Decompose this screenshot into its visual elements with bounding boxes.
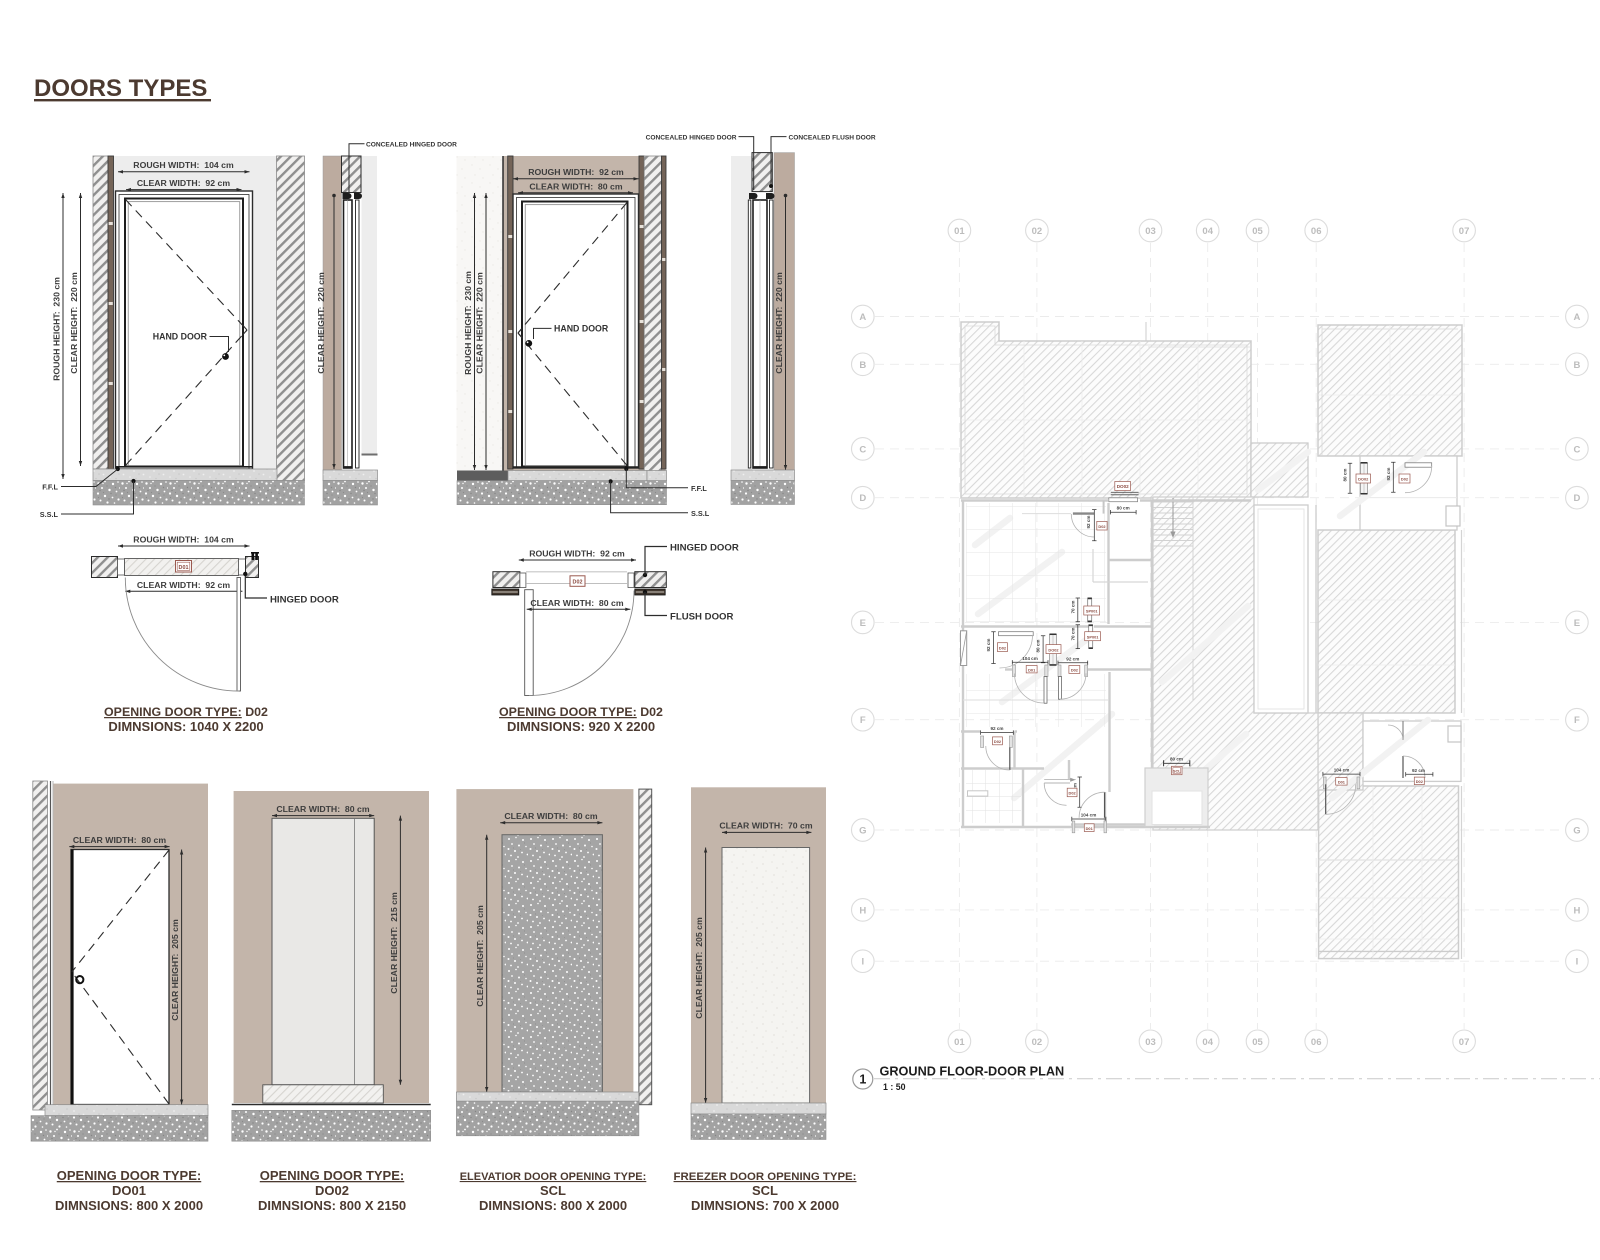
svg-text:CLEAR WIDTH: 80 cm: CLEAR WIDTH: 80 cm (276, 804, 369, 814)
svg-text:CONCEALED FLUSH DOOR: CONCEALED FLUSH DOOR (789, 134, 876, 141)
svg-text:E: E (1574, 618, 1580, 629)
svg-text:D: D (1573, 493, 1580, 504)
svg-text:104 cm: 104 cm (1334, 768, 1350, 773)
svg-text:I: I (861, 957, 864, 968)
svg-text:01: 01 (954, 226, 965, 237)
svg-text:70 cm: 70 cm (1070, 600, 1075, 613)
svg-text:92 cm: 92 cm (1412, 768, 1425, 773)
svg-text:F: F (860, 715, 866, 726)
svg-text:D01: D01 (1338, 780, 1346, 785)
svg-text:DIMNSIONS: 800 X 2000: DIMNSIONS: 800 X 2000 (479, 1198, 627, 1213)
svg-text:CLEAR HEIGHT: 205 cm: CLEAR HEIGHT: 205 cm (694, 917, 704, 1019)
svg-text:D02: D02 (573, 579, 583, 585)
svg-text:03: 03 (1145, 1037, 1156, 1048)
svg-text:D01: D01 (1028, 667, 1036, 672)
svg-text:H: H (859, 905, 866, 916)
svg-text:CLEAR HEIGHT: 220 cm: CLEAR HEIGHT: 220 cm (69, 272, 79, 374)
svg-text:OPENING DOOR TYPE:: OPENING DOOR TYPE: (57, 1168, 201, 1183)
svg-text:104 cm: 104 cm (1022, 656, 1038, 661)
svg-text:FLUSH DOOR: FLUSH DOOR (670, 612, 733, 623)
svg-text:H: H (1573, 905, 1580, 916)
svg-text:DIMNSIONS: 1040 X 2200: DIMNSIONS: 1040 X 2200 (108, 719, 263, 734)
svg-text:06: 06 (1311, 1037, 1322, 1048)
svg-text:F.F.L: F.F.L (691, 484, 707, 493)
svg-text:04: 04 (1202, 1037, 1213, 1048)
svg-text:D01: D01 (1086, 826, 1094, 831)
svg-text:04: 04 (1202, 226, 1213, 237)
svg-text:80 cm: 80 cm (1170, 757, 1183, 762)
svg-text:D02: D02 (1069, 791, 1077, 796)
svg-text:80 cm: 80 cm (1036, 639, 1041, 652)
svg-text:HAND DOOR: HAND DOOR (554, 324, 609, 334)
svg-text:SCL: SCL (540, 1183, 566, 1198)
svg-text:07: 07 (1459, 226, 1470, 237)
svg-text:92 cm: 92 cm (986, 638, 991, 651)
svg-text:E: E (860, 618, 866, 629)
svg-text:03: 03 (1145, 226, 1156, 237)
svg-text:ROUGH WIDTH: 92 cm: ROUGH WIDTH: 92 cm (529, 549, 625, 559)
svg-text:D02: D02 (999, 645, 1007, 650)
svg-text:02: 02 (1032, 226, 1043, 237)
svg-text:DO02: DO02 (1358, 477, 1369, 482)
svg-text:DIMNSIONS: 700 X 2000: DIMNSIONS: 700 X 2000 (691, 1198, 839, 1213)
svg-text:05: 05 (1252, 1037, 1263, 1048)
svg-text:CLEAR HEIGHT: 205 cm: CLEAR HEIGHT: 205 cm (170, 919, 180, 1021)
svg-text:OPENING DOOR TYPE:: OPENING DOOR TYPE: (260, 1168, 404, 1183)
svg-text:SP001: SP001 (1086, 609, 1099, 614)
svg-text:ROUGH HEIGHT: 230 cm: ROUGH HEIGHT: 230 cm (463, 271, 473, 375)
svg-text:CLEAR WIDTH: 92 cm: CLEAR WIDTH: 92 cm (137, 178, 230, 188)
svg-text:DIMNSIONS: 800 X 2150: DIMNSIONS: 800 X 2150 (258, 1198, 406, 1213)
svg-text:FREEZER DOOR OPENING TYPE:: FREEZER DOOR OPENING TYPE: (674, 1171, 857, 1183)
svg-text:F: F (1574, 715, 1580, 726)
svg-text:92 cm: 92 cm (1386, 467, 1391, 480)
svg-text:CLEAR WIDTH: 70 cm: CLEAR WIDTH: 70 cm (719, 821, 812, 831)
svg-text:C: C (859, 444, 866, 455)
svg-text:DIMNSIONS: 920 X 2200: DIMNSIONS: 920 X 2200 (507, 719, 655, 734)
svg-text:ELEVATIOR DOOR OPENING TYPE:: ELEVATIOR DOOR OPENING TYPE: (460, 1171, 647, 1183)
svg-text:06: 06 (1311, 226, 1322, 237)
svg-text:DO02: DO02 (1048, 647, 1059, 652)
svg-text:S.S.L: S.S.L (691, 509, 710, 518)
svg-text:DO02: DO02 (315, 1183, 349, 1198)
svg-text:CLEAR WIDTH: 80 cm: CLEAR WIDTH: 80 cm (529, 182, 622, 192)
svg-text:B: B (1573, 360, 1580, 371)
svg-text:OPENING DOOR TYPE: D02: OPENING DOOR TYPE: D02 (499, 705, 663, 719)
svg-text:A: A (1573, 312, 1580, 323)
svg-text:CLEAR WIDTH: 92 cm: CLEAR WIDTH: 92 cm (137, 580, 230, 590)
svg-text:D: D (859, 493, 866, 504)
svg-text:D02: D02 (994, 739, 1002, 744)
svg-text:SP001: SP001 (1087, 634, 1100, 639)
svg-text:D01: D01 (179, 565, 189, 571)
svg-text:1 : 50: 1 : 50 (883, 1082, 906, 1092)
svg-text:ROUGH WIDTH: 104 cm: ROUGH WIDTH: 104 cm (133, 160, 234, 170)
svg-text:SCL: SCL (752, 1183, 778, 1198)
svg-text:92 cm: 92 cm (990, 726, 1003, 731)
svg-text:CLEAR WIDTH: 80 cm: CLEAR WIDTH: 80 cm (530, 598, 623, 608)
svg-text:CONCEALED HINGED DOOR: CONCEALED HINGED DOOR (366, 142, 457, 149)
svg-text:1: 1 (859, 1073, 866, 1087)
svg-text:DOORS TYPES: DOORS TYPES (34, 75, 207, 102)
svg-text:92 cm: 92 cm (1086, 515, 1091, 528)
svg-text:S.S.L: S.S.L (40, 510, 59, 519)
svg-text:02: 02 (1032, 1037, 1043, 1048)
svg-text:HINGED DOOR: HINGED DOOR (270, 595, 339, 606)
svg-text:A: A (859, 312, 866, 323)
svg-text:CLEAR HEIGHT: 215 cm: CLEAR HEIGHT: 215 cm (389, 892, 399, 994)
svg-text:DO02: DO02 (1117, 484, 1129, 489)
svg-text:CLEAR HEIGHT: 220 cm: CLEAR HEIGHT: 220 cm (475, 272, 485, 374)
svg-text:G: G (859, 826, 866, 837)
svg-text:ROUGH WIDTH: 92 cm: ROUGH WIDTH: 92 cm (528, 167, 624, 177)
svg-text:80 cm: 80 cm (1343, 468, 1348, 481)
svg-text:07: 07 (1459, 1037, 1470, 1048)
svg-text:HINGED DOOR: HINGED DOOR (670, 543, 739, 554)
svg-text:CLEAR HEIGHT: 220 cm: CLEAR HEIGHT: 220 cm (774, 272, 784, 374)
svg-text:HAND DOOR: HAND DOOR (153, 332, 208, 342)
svg-text:70 cm: 70 cm (1070, 627, 1075, 640)
svg-text:CONCEALED HINGED DOOR: CONCEALED HINGED DOOR (646, 134, 737, 141)
svg-text:CLEAR HEIGHT: 220 cm: CLEAR HEIGHT: 220 cm (316, 272, 326, 374)
svg-text:05: 05 (1252, 226, 1263, 237)
svg-text:SCL: SCL (1173, 769, 1181, 774)
svg-text:B: B (859, 360, 866, 371)
svg-text:GROUND FLOOR-DOOR PLAN: GROUND FLOOR-DOOR PLAN (880, 1065, 1065, 1079)
svg-text:DO01: DO01 (112, 1183, 146, 1198)
svg-text:CLEAR WIDTH: 80 cm: CLEAR WIDTH: 80 cm (504, 811, 597, 821)
svg-text:F.F.L: F.F.L (42, 483, 58, 492)
svg-text:D02: D02 (1071, 668, 1079, 673)
svg-text:01: 01 (954, 1037, 965, 1048)
svg-text:92 cm: 92 cm (1066, 656, 1079, 661)
svg-text:C: C (1573, 444, 1580, 455)
svg-text:ROUGH HEIGHT: 230 cm: ROUGH HEIGHT: 230 cm (52, 277, 62, 381)
svg-text:DIMNSIONS: 800 X 2000: DIMNSIONS: 800 X 2000 (55, 1198, 203, 1213)
svg-text:G: G (1573, 826, 1580, 837)
svg-text:CLEAR HEIGHT: 205 cm: CLEAR HEIGHT: 205 cm (475, 905, 485, 1007)
svg-text:D02: D02 (1416, 779, 1424, 784)
svg-text:I: I (1576, 957, 1579, 968)
svg-text:104 cm: 104 cm (1081, 813, 1097, 818)
svg-text:80 cm: 80 cm (1117, 506, 1130, 511)
svg-text:ROUGH WIDTH: 104 cm: ROUGH WIDTH: 104 cm (133, 535, 234, 545)
svg-text:D02: D02 (1401, 477, 1409, 482)
svg-text:CLEAR WIDTH: 80 cm: CLEAR WIDTH: 80 cm (73, 835, 166, 845)
svg-text:D02: D02 (1098, 524, 1106, 529)
svg-text:OPENING DOOR TYPE: D02: OPENING DOOR TYPE: D02 (104, 705, 268, 719)
